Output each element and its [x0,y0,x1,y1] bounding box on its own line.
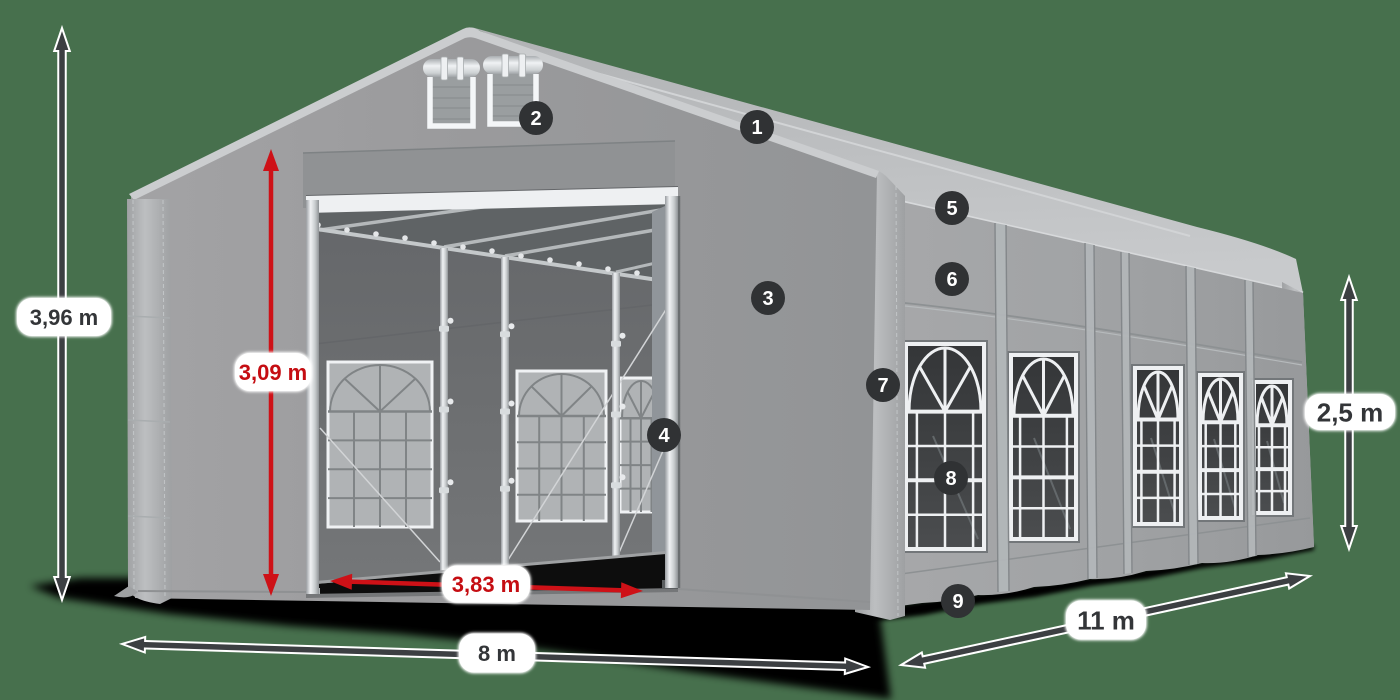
svg-text:7: 7 [877,375,888,397]
svg-text:3: 3 [762,288,773,310]
svg-text:2: 2 [530,108,541,130]
svg-text:4: 4 [658,425,670,447]
svg-text:3,09 m: 3,09 m [239,360,308,385]
svg-text:11 m: 11 m [1077,605,1135,635]
svg-text:2,5 m: 2,5 m [1317,397,1384,427]
svg-text:6: 6 [946,269,957,291]
svg-text:3,83 m: 3,83 m [452,572,521,597]
svg-text:5: 5 [946,198,957,220]
svg-text:1: 1 [751,117,762,139]
svg-text:3,96 m: 3,96 m [30,305,99,330]
svg-text:8 m: 8 m [478,641,516,666]
svg-text:9: 9 [952,591,963,613]
svg-text:8: 8 [945,468,956,490]
